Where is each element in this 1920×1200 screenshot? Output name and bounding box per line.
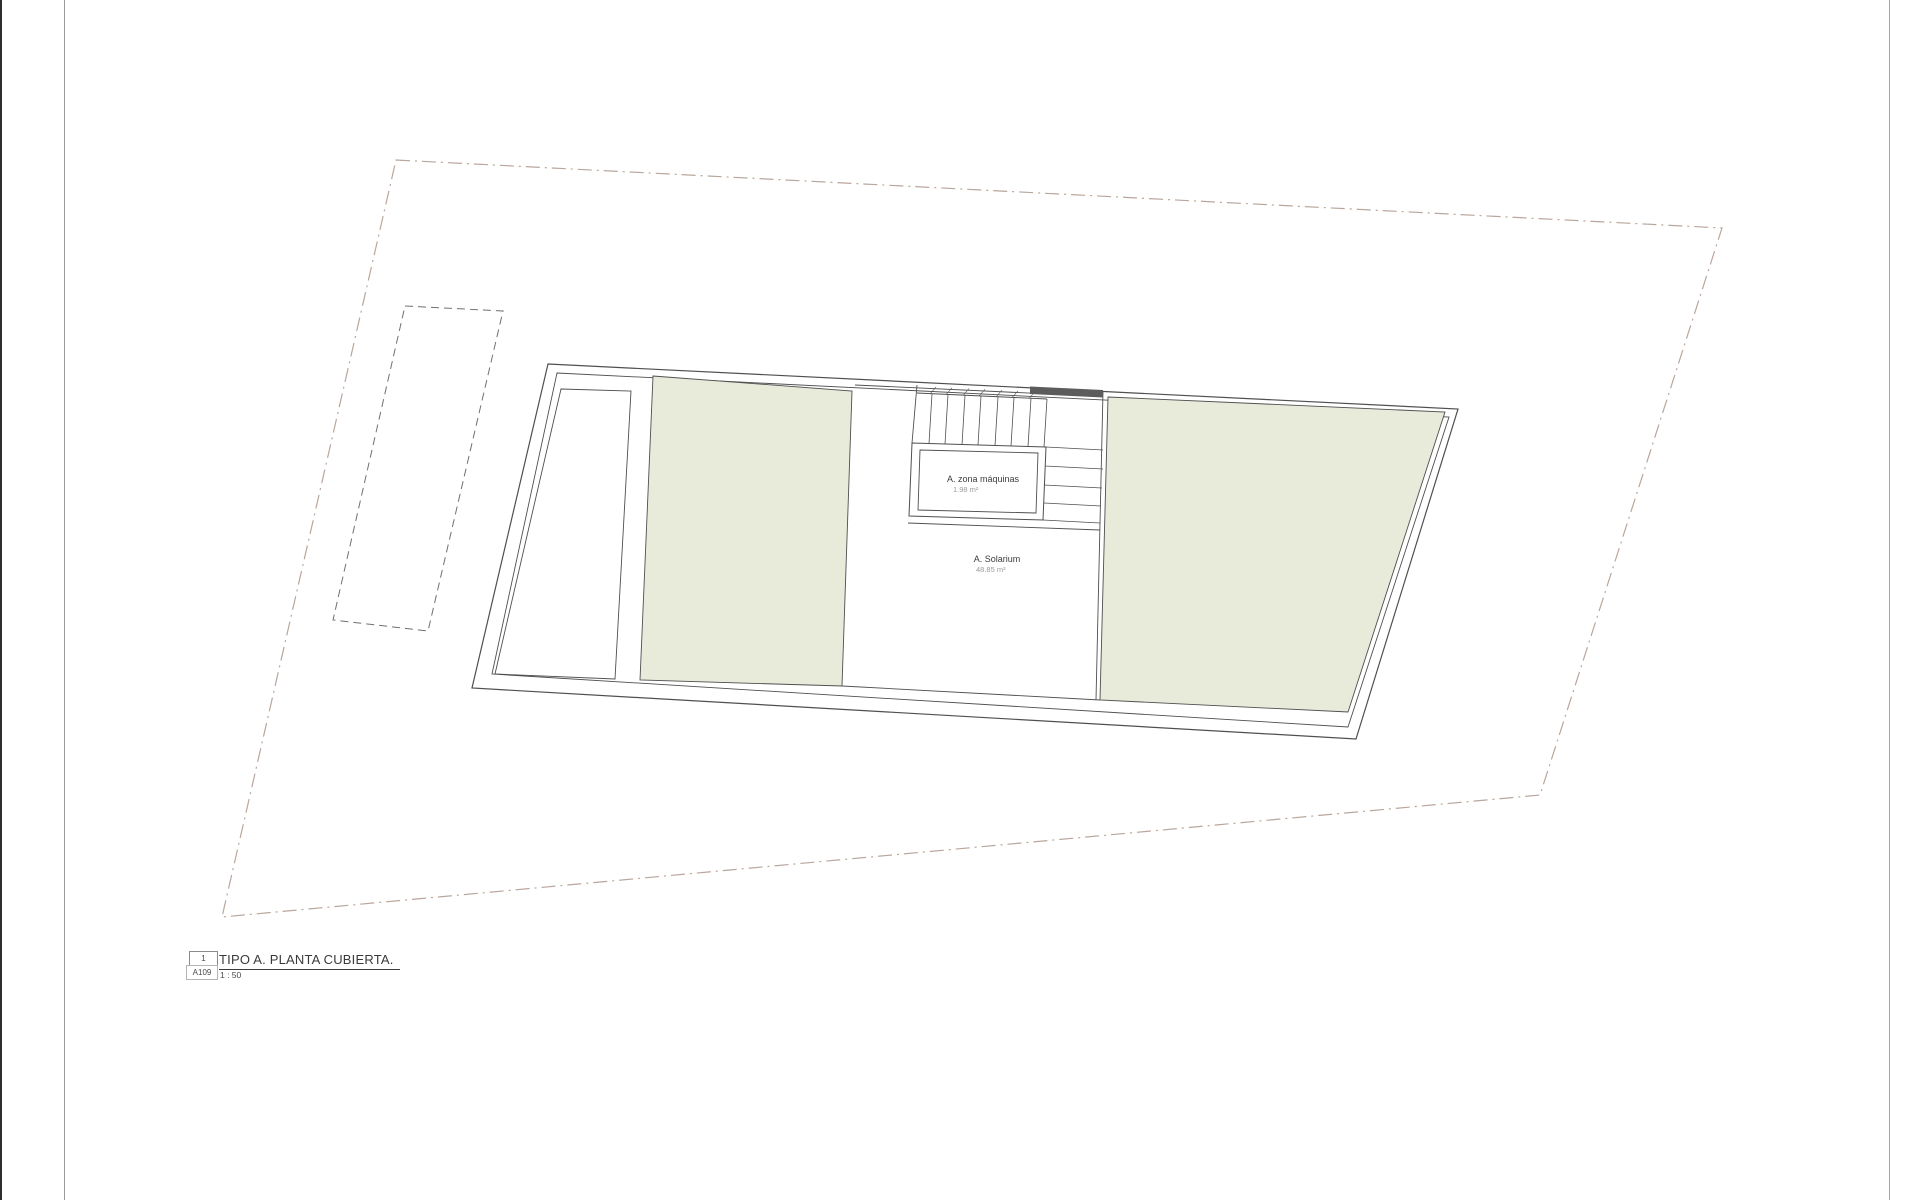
roof-plan-drawing: A. zona máquinas 1.98 m² A. Solarium 48.… xyxy=(0,0,1920,1200)
machine-room-area: 1.98 m² xyxy=(953,485,979,494)
solarium-area: 48.85 m² xyxy=(976,565,1006,574)
roof-panel-left xyxy=(640,376,852,686)
roof-panel-right xyxy=(1100,397,1445,712)
dashed-annex-outline xyxy=(333,306,503,631)
drawing-scale: 1 : 50 xyxy=(220,970,241,980)
sheet-code-box: A109 xyxy=(186,965,218,980)
drawing-title: TIPO A. PLANTA CUBIERTA. xyxy=(219,952,400,970)
machine-room-label: A. zona máquinas xyxy=(947,474,1020,484)
drawing-sheet: A. zona máquinas 1.98 m² A. Solarium 48.… xyxy=(0,0,1920,1200)
detail-number-box: 1 xyxy=(189,951,218,966)
solarium-label: A. Solarium xyxy=(974,554,1021,564)
